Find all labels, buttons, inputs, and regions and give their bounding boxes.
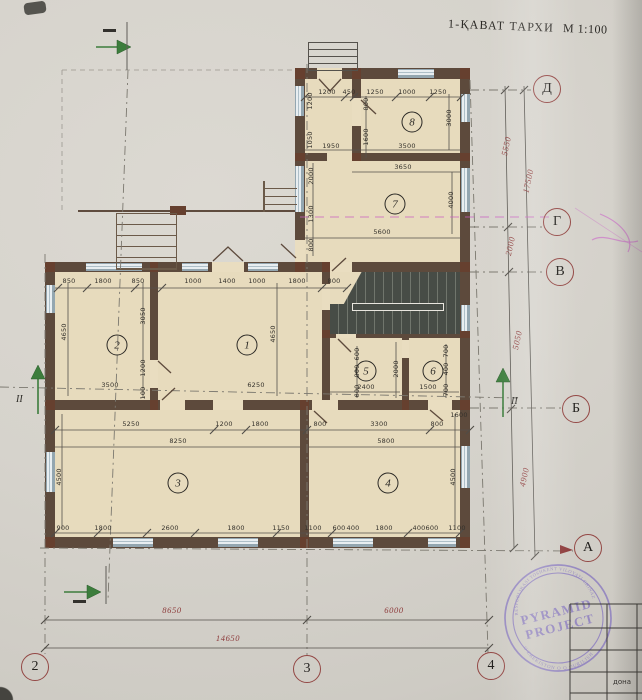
dimension-label: 450 xyxy=(342,89,355,96)
room-number-1: 1 xyxy=(237,335,258,356)
dimension-label: 1800 xyxy=(375,525,392,532)
axis-dimension-label: 6000 xyxy=(384,605,403,615)
dimension-label: 2000 xyxy=(308,167,315,184)
dimension-label: 1250 xyxy=(366,89,383,96)
room-number-3: 3 xyxy=(168,473,189,494)
dimension-label: 5250 xyxy=(122,421,139,428)
dimension-label: 800 xyxy=(430,421,443,428)
dimension-label: 850 xyxy=(62,278,75,285)
section-arrows xyxy=(31,22,510,604)
dimension-label: 1800 xyxy=(94,525,111,532)
dimension-label: 8250 xyxy=(169,438,186,445)
dimension-label: 1800 xyxy=(227,525,244,532)
dimension-label: 3000 xyxy=(446,109,453,126)
dimension-label: 1200 xyxy=(215,421,232,428)
dimension-label: 2600 xyxy=(161,525,178,532)
dimension-label: 5800 xyxy=(377,438,394,445)
porch-boundary-dashes xyxy=(62,70,295,212)
dimension-label: 5600 xyxy=(373,229,390,236)
dimension-label: 1150 xyxy=(272,525,289,532)
dimension-label: 1100 xyxy=(304,525,321,532)
dimension-label: 800 xyxy=(327,278,340,285)
dimension-label: 4650 xyxy=(270,325,277,342)
room-number-4: 4 xyxy=(378,473,399,494)
dimension-label: 600 xyxy=(425,525,438,532)
dimension-label: 1100 xyxy=(448,525,465,532)
dimension-label: 700 xyxy=(443,344,450,357)
dimension-ticks xyxy=(41,86,539,652)
axis-line-4 xyxy=(470,80,488,653)
dim-line xyxy=(313,94,452,398)
room-number-6: 6 xyxy=(423,361,444,382)
grid-axis-lines xyxy=(0,64,573,656)
dimension-label: 850 xyxy=(131,278,144,285)
dimension-label: 1000 xyxy=(184,278,201,285)
dim-line-bottom xyxy=(45,620,489,648)
room-number-8: 8 xyxy=(402,112,423,133)
dimension-label: 1600 xyxy=(363,128,370,145)
dimension-label: 1800 xyxy=(251,421,268,428)
dimension-label: 3500 xyxy=(101,382,118,389)
section-roman-mark xyxy=(103,29,116,32)
door-leaves xyxy=(158,79,443,423)
room-number-7: 7 xyxy=(385,194,406,215)
dimension-label: 800 xyxy=(308,238,315,251)
dimension-label: 4500 xyxy=(450,468,457,485)
dimension-label: 3050 xyxy=(140,307,147,324)
dimension-label: 3300 xyxy=(370,421,387,428)
dimension-label: 800 xyxy=(363,97,370,110)
room-number-5: 5 xyxy=(356,361,377,382)
axis-line-a xyxy=(40,548,573,551)
door-leaf xyxy=(281,244,296,258)
door-leaf xyxy=(213,247,243,261)
axis-dimension-label: 14650 xyxy=(216,633,240,643)
dimension-label: 400 xyxy=(443,362,450,375)
dimension-label: 1800 xyxy=(94,278,111,285)
section-roman-mark xyxy=(73,600,86,603)
grid-bubble-row-v: В xyxy=(546,258,574,286)
dimension-label: 4650 xyxy=(61,323,68,340)
section-arrow-icon xyxy=(117,40,131,54)
section-label-left: II xyxy=(16,394,23,405)
grid-bubble-col-3: 3 xyxy=(293,655,321,683)
blueprint-photo: 1-ҚАВАТ ТАРХИМ 1:100 xyxy=(0,0,642,700)
section-arrow-icon xyxy=(496,368,510,382)
dimension-label: 1500 xyxy=(419,384,436,391)
grid-bubble-col-2: 2 xyxy=(21,653,49,681)
dimension-label: 600 xyxy=(354,347,361,360)
door-leaf xyxy=(332,258,346,271)
dimension-label: 4000 xyxy=(448,191,455,208)
dimension-label: 1000 xyxy=(248,278,265,285)
dimension-label: 1300 xyxy=(308,205,315,222)
dimension-label: 1200 xyxy=(318,89,335,96)
dimension-label: 6250 xyxy=(247,382,264,389)
grid-bubble-row-g: Г xyxy=(543,208,571,236)
dimension-label: 700 xyxy=(443,383,450,396)
grid-bubble-col-4: 4 xyxy=(477,652,505,680)
grid-bubble-row-a: А xyxy=(574,534,602,562)
grid-bubble-row-b: Б xyxy=(562,395,590,423)
section-label-right: II xyxy=(511,396,518,407)
magenta-scribble xyxy=(592,237,638,242)
dimension-label: 400 xyxy=(346,525,359,532)
title-scale: М 1:100 xyxy=(563,21,608,37)
dimension-label: 900 xyxy=(56,525,69,532)
dimension-label: 1050 xyxy=(307,131,314,148)
dimension-label: 1250 xyxy=(429,89,446,96)
dimension-label: 1200 xyxy=(140,359,147,376)
dimension-label: 1800 xyxy=(288,278,305,285)
room-number-2: 2 xyxy=(107,335,128,356)
dimension-label: 1950 xyxy=(322,143,339,150)
dimension-label: 1200 xyxy=(307,92,314,109)
titleblock-qty-label: дона xyxy=(613,678,631,686)
grid-bubble-row-d: Д xyxy=(533,75,561,103)
dimension-label: 4500 xyxy=(56,468,63,485)
dimension-label: 2400 xyxy=(357,384,374,391)
dimension-label: 1000 xyxy=(398,89,415,96)
linework-layer: RESPUBLIKASI TOSHKENT VILOYATI CHINAZ TU… xyxy=(0,0,642,700)
magenta-scribble xyxy=(600,214,630,252)
section-arrow-icon xyxy=(31,365,45,379)
door-leaf xyxy=(158,361,171,373)
tick xyxy=(41,616,493,652)
dimension-label: 3650 xyxy=(394,164,411,171)
axis-arrowhead xyxy=(560,545,573,554)
door-leaf xyxy=(338,339,351,352)
dimension-label: 800 xyxy=(313,421,326,428)
dimension-label: 600 xyxy=(332,525,345,532)
section-arrow-icon xyxy=(87,585,101,599)
dim-line xyxy=(62,282,455,529)
magenta-line xyxy=(575,208,642,252)
door-leaf xyxy=(162,388,175,400)
dimension-label: 100 xyxy=(140,386,147,399)
dimension-label: 2000 xyxy=(393,360,400,377)
dim-line xyxy=(55,288,470,533)
dimension-label: 1600 xyxy=(450,412,467,419)
dimension-label: 1400 xyxy=(218,278,235,285)
reviewer-marks xyxy=(300,208,642,252)
axis-dimension-label: 8650 xyxy=(162,605,181,615)
dimension-label: 400 xyxy=(412,525,425,532)
dimension-lines xyxy=(45,86,535,648)
title-text: 1-ҚАВАТ ТАРХИ xyxy=(448,17,554,35)
dimension-label: 3500 xyxy=(398,143,415,150)
